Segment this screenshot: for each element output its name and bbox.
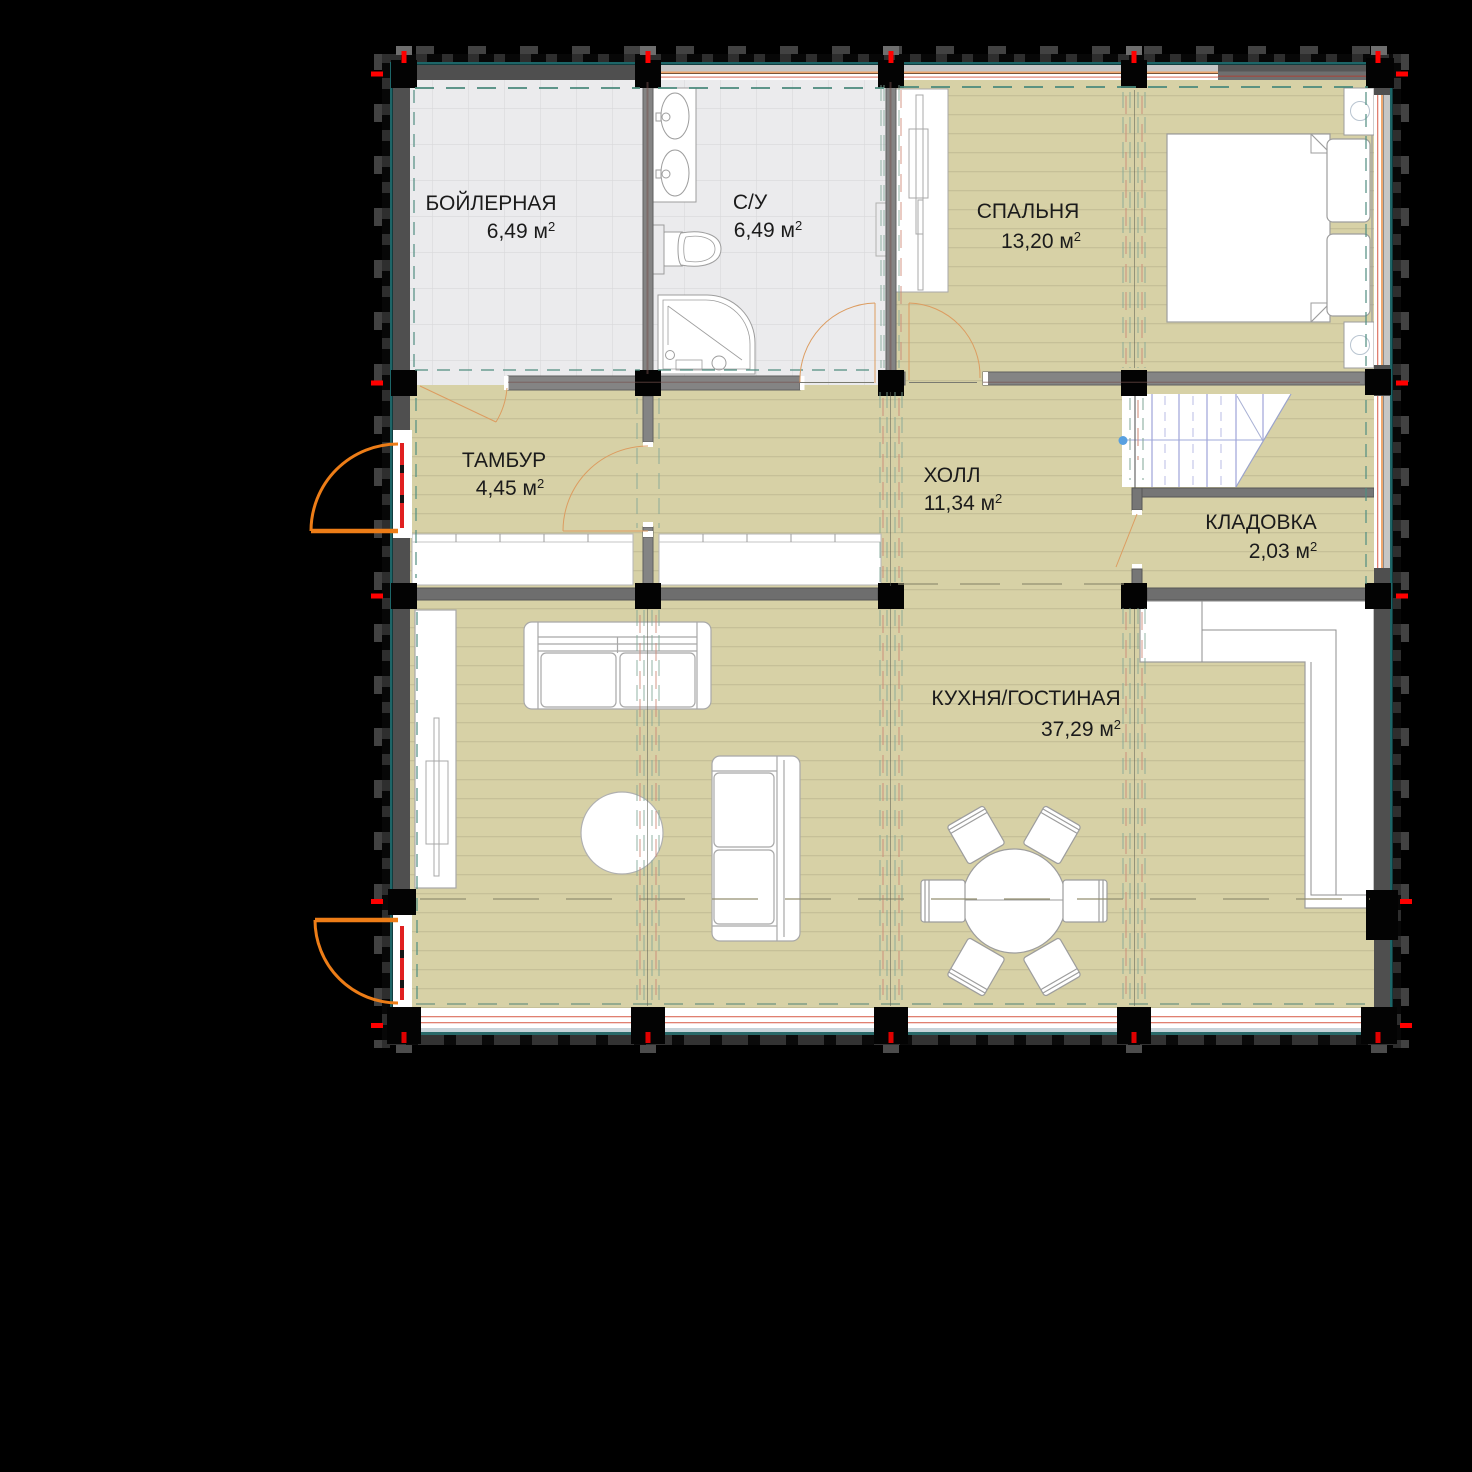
svg-text:КЛАДОВКА: КЛАДОВКА: [1205, 511, 1317, 534]
svg-text:11,34 м2: 11,34 м2: [924, 491, 1003, 515]
svg-text:37,29 м2: 37,29 м2: [1041, 717, 1121, 741]
svg-text:БОЙЛЕРНАЯ: БОЙЛЕРНАЯ: [425, 191, 556, 215]
svg-text:6,49 м2: 6,49 м2: [487, 219, 555, 243]
svg-text:С/У: С/У: [733, 191, 768, 214]
svg-text:ХОЛЛ: ХОЛЛ: [924, 464, 981, 487]
svg-text:6,49 м2: 6,49 м2: [734, 218, 802, 242]
svg-text:КУХНЯ/ГОСТИНАЯ: КУХНЯ/ГОСТИНАЯ: [931, 687, 1120, 710]
svg-text:СПАЛЬНЯ: СПАЛЬНЯ: [977, 200, 1080, 223]
svg-text:4,45 м2: 4,45 м2: [476, 476, 544, 500]
svg-text:ТАМБУР: ТАМБУР: [462, 449, 546, 472]
svg-text:13,20 м2: 13,20 м2: [1001, 229, 1081, 253]
svg-text:2,03 м2: 2,03 м2: [1249, 539, 1317, 563]
